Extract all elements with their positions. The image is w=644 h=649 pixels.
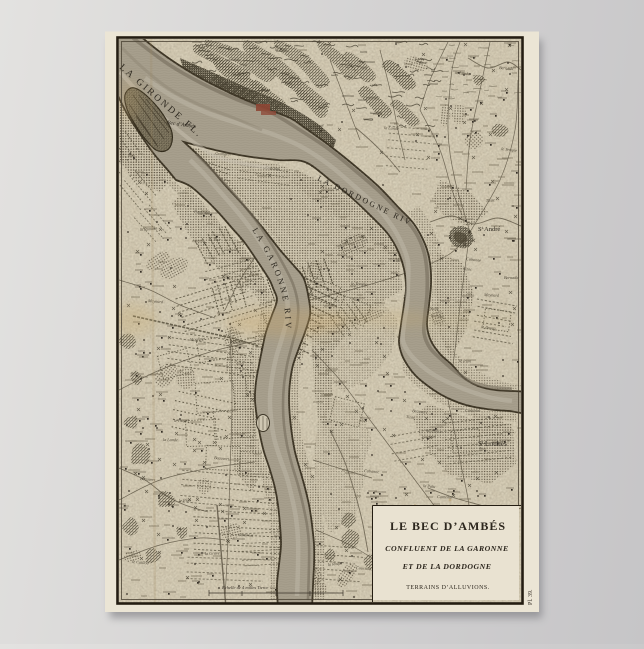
svg-text:ET DE LA DORDOGNE: ET DE LA DORDOGNE xyxy=(402,562,492,571)
svg-text:la Lande: la Lande xyxy=(384,125,399,131)
svg-text:la Lande: la Lande xyxy=(163,437,178,442)
svg-text:le Pian: le Pian xyxy=(459,358,471,364)
svg-text:la Palu: la Palu xyxy=(423,483,436,489)
svg-text:la Tour: la Tour xyxy=(209,237,222,242)
svg-text:Tizac: Tizac xyxy=(486,197,495,203)
svg-text:TERRAINS D’ALLUVIONS.: TERRAINS D’ALLUVIONS. xyxy=(406,585,490,591)
svg-text:St.André: St.André xyxy=(478,225,500,233)
svg-text:Pl. 39.: Pl. 39. xyxy=(528,589,534,605)
svg-text:Bernada: Bernada xyxy=(504,275,518,280)
svg-text:CONFLUENT DE LA GARONNE: CONFLUENT DE LA GARONNE xyxy=(385,544,509,553)
svg-text:Echelle de 4 milles Tierce: Echelle de 4 milles Tierce xyxy=(221,585,268,590)
svg-text:LE BEC D’AMBÉS: LE BEC D’AMBÉS xyxy=(390,519,506,533)
svg-text:Marsillon: Marsillon xyxy=(425,428,443,434)
svg-text:Cantenat: Cantenat xyxy=(465,408,481,413)
svg-text:Tizac: Tizac xyxy=(463,266,472,272)
svg-text:Meynard: Meynard xyxy=(483,292,500,298)
svg-text:la Grave: la Grave xyxy=(205,550,220,556)
svg-text:Cantenat: Cantenat xyxy=(437,494,453,500)
svg-text:Tizac: Tizac xyxy=(406,414,415,420)
